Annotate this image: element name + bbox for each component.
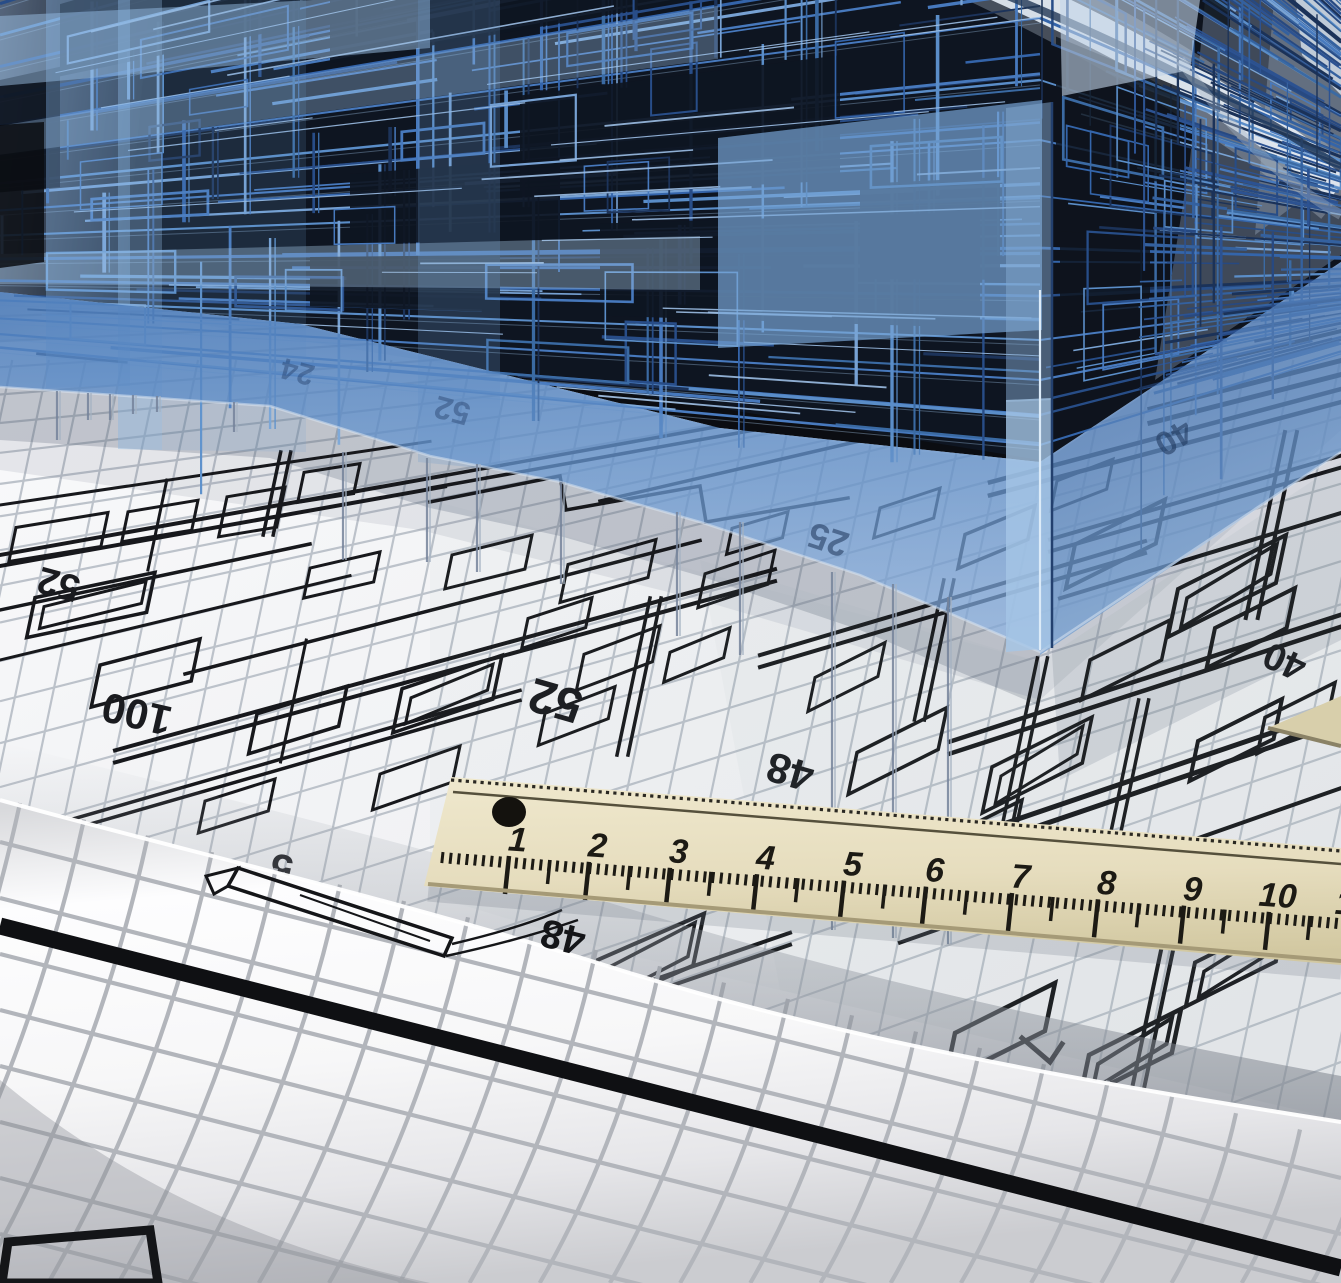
svg-text:2: 2 bbox=[586, 826, 609, 865]
svg-text:5: 5 bbox=[842, 845, 865, 884]
svg-text:3: 3 bbox=[668, 832, 690, 871]
svg-text:6: 6 bbox=[924, 851, 947, 890]
svg-text:1: 1 bbox=[507, 820, 529, 859]
svg-text:4: 4 bbox=[754, 839, 777, 878]
svg-text:10: 10 bbox=[1258, 876, 1298, 917]
svg-text:9: 9 bbox=[1182, 870, 1204, 909]
svg-text:8: 8 bbox=[1096, 864, 1118, 903]
